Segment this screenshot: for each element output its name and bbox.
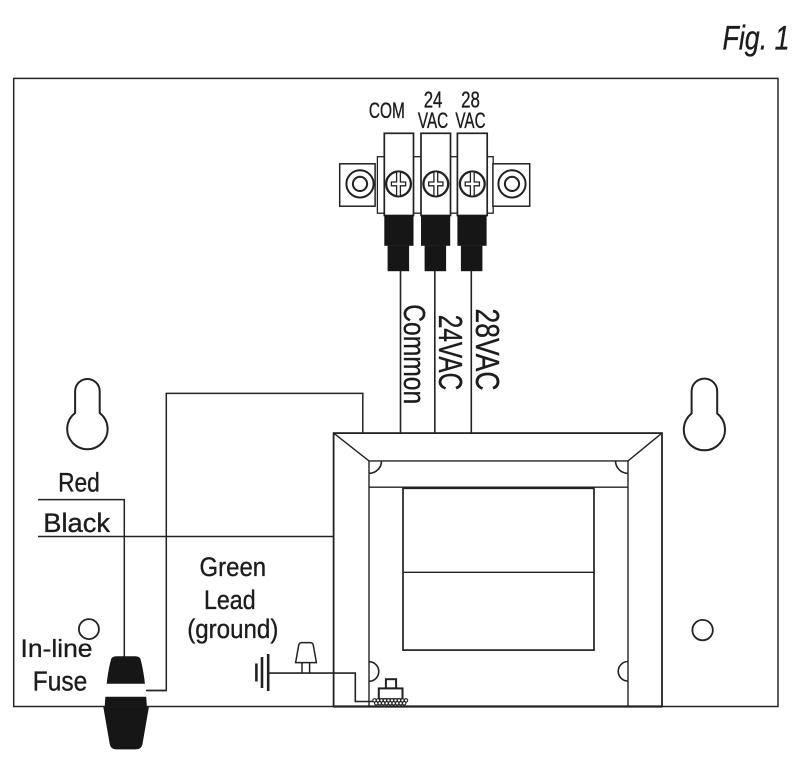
svg-text:Fig. 1: Fig. 1 [723,20,790,58]
svg-text:In-line: In-line [21,635,93,663]
svg-text:COM: COM [369,98,405,123]
svg-text:28VAC: 28VAC [469,309,506,391]
svg-text:Red: Red [58,468,100,498]
svg-text:VAC: VAC [455,108,485,133]
svg-text:Lead: Lead [204,585,256,615]
svg-text:(ground): (ground) [187,614,278,644]
svg-text:Black: Black [43,508,110,538]
svg-text:VAC: VAC [418,108,448,133]
svg-text:24VAC: 24VAC [432,315,469,391]
svg-text:Green: Green [200,552,267,582]
svg-text:Common: Common [397,304,432,404]
svg-text:Fuse: Fuse [33,665,87,696]
